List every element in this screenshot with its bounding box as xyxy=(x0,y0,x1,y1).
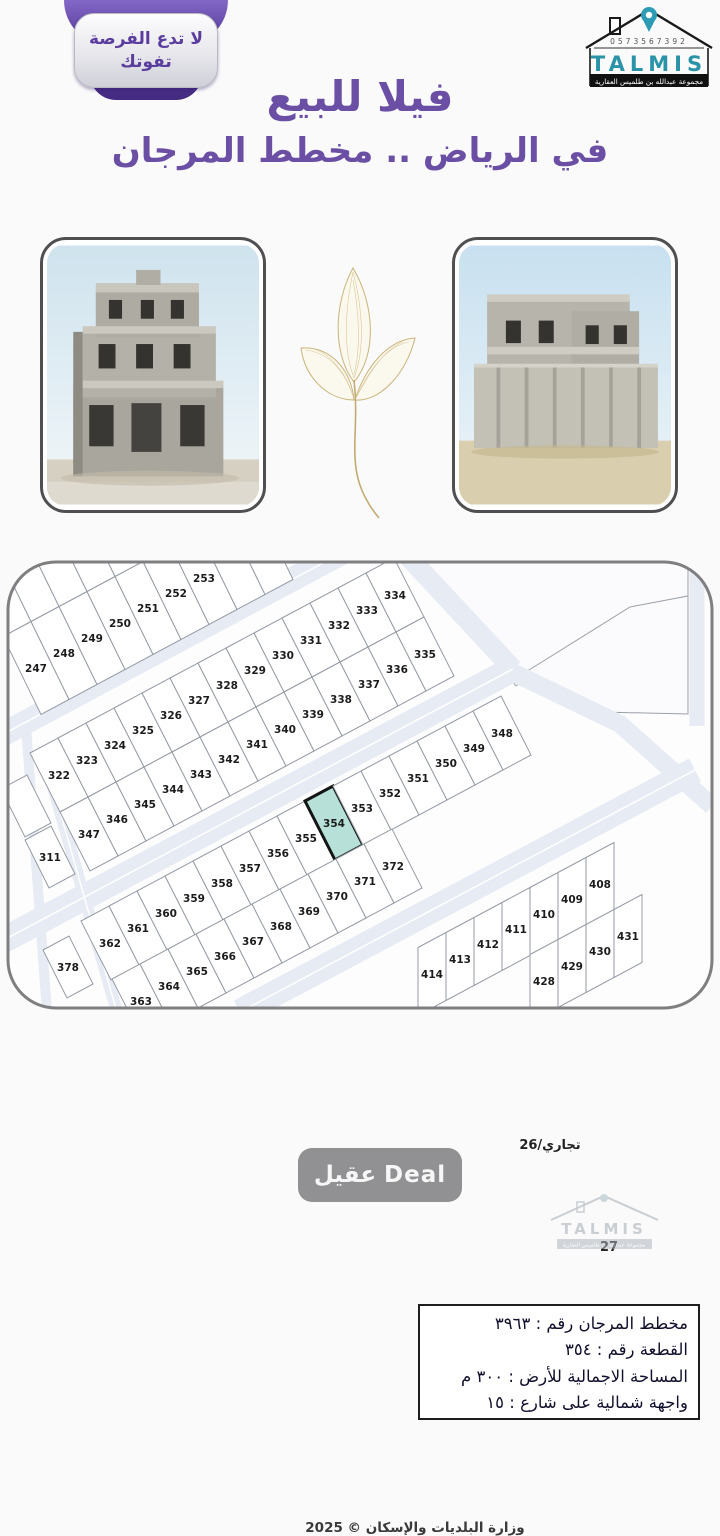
ministry-credit: وزارة البلديات والإسكان © 2025 xyxy=(250,1520,580,1536)
parcel-label: 350 xyxy=(435,758,457,770)
page-title: فيلا للبيع في الرياض .. مخطط المرجان xyxy=(80,72,640,171)
parcel-label: 344 xyxy=(162,784,184,796)
gold-leaf-decoration-icon xyxy=(283,250,433,530)
parcel-label: 250 xyxy=(109,618,131,630)
parcel-label: 348 xyxy=(491,728,513,740)
parcel-label: 252 xyxy=(165,588,187,600)
parcel-label: 347 xyxy=(78,829,100,841)
parcel-label: 331 xyxy=(300,635,322,647)
parcel-label: 342 xyxy=(218,754,240,766)
villa-photo-right-image xyxy=(459,244,671,506)
parcel-label: 430 xyxy=(589,946,611,958)
info-line-parcel: القطعة رقم : ٣٥٤ xyxy=(426,1337,688,1363)
talmis-watermark: TALMIS مجموعة عبدالله بن طلميس العقارية xyxy=(537,1190,672,1258)
parcel-label: 346 xyxy=(106,814,128,826)
parcel-label: 251 xyxy=(137,603,159,615)
parcel-label: 325 xyxy=(132,725,154,737)
flyer-root: { "badge": { "line1": "لا تدع الفرصة", "… xyxy=(0,0,720,1040)
parcel-label: 369 xyxy=(298,906,320,918)
parcel-label: 412 xyxy=(477,939,499,951)
parcel-label: 431 xyxy=(617,931,639,943)
parcel-label: 363 xyxy=(130,996,152,1008)
parcel-label: 253 xyxy=(193,573,215,585)
parcel-label: 410 xyxy=(533,909,555,921)
parcel-label: 357 xyxy=(239,863,261,875)
parcel-label: 351 xyxy=(407,773,429,785)
parcel-label: 340 xyxy=(274,724,296,736)
parcel-label: 334 xyxy=(384,590,406,602)
badge-text-line2: تفوتك xyxy=(120,51,172,73)
info-line-area: المساحة الاجمالية للأرض : ٣٠٠ م xyxy=(426,1364,688,1390)
talmis-watermark-tagline: مجموعة عبدالله بن طلميس العقارية xyxy=(563,1243,646,1249)
info-line-plan: مخطط المرجان رقم : ٣٩٦٣ xyxy=(426,1311,688,1337)
parcel-label: 329 xyxy=(244,665,266,677)
parcel-label: 349 xyxy=(463,743,485,755)
parcel-label: 368 xyxy=(270,921,292,933)
parcel-label: 337 xyxy=(358,679,380,691)
parcel-label: 372 xyxy=(382,861,404,873)
parcel-label: 328 xyxy=(216,680,238,692)
parcel-label: 247 xyxy=(25,663,47,675)
title-line2: في الرياض .. مخطط المرجان xyxy=(80,131,640,171)
parcel-label: 249 xyxy=(81,633,103,645)
parcel-label: 413 xyxy=(449,954,471,966)
talmis-watermark-text: TALMIS xyxy=(561,1220,647,1238)
parcel-label: 371 xyxy=(354,876,376,888)
parcel-label: 311 xyxy=(39,852,61,864)
parcel-label: 343 xyxy=(190,769,212,781)
parcel-label: 359 xyxy=(183,893,205,905)
parcel-label: 358 xyxy=(211,878,233,890)
parcel-label: 378 xyxy=(57,962,79,974)
parcel-label: 352 xyxy=(379,788,401,800)
info-line-frontage: واجهة شمالية على شارع : ١٥ xyxy=(426,1390,688,1416)
parcel-label: 360 xyxy=(155,908,177,920)
parcel-label: 414 xyxy=(421,969,443,981)
parcel-label: 330 xyxy=(272,650,294,662)
logo-phone: 0573567392 xyxy=(610,37,688,46)
parcel-label: 367 xyxy=(242,936,264,948)
parcel-label: 248 xyxy=(53,648,75,660)
parcel-label: 322 xyxy=(48,770,70,782)
parcel-label: 332 xyxy=(328,620,350,632)
deal-watermark: عقيل Deal xyxy=(298,1148,462,1202)
photo-villa-left xyxy=(40,237,266,513)
parcel-label: 365 xyxy=(186,966,208,978)
parcel-label: 324 xyxy=(104,740,126,752)
parcel-label: 370 xyxy=(326,891,348,903)
parcel-label: 339 xyxy=(302,709,324,721)
plot-map: 2472482492502512522533223233243253263273… xyxy=(0,552,720,1012)
parcel-label: 428 xyxy=(533,976,555,988)
parcel-label: 323 xyxy=(76,755,98,767)
parcel-label: 341 xyxy=(246,739,268,751)
parcel-label: 354 xyxy=(323,818,345,830)
parcel-label: 326 xyxy=(160,710,182,722)
parcel-label: 355 xyxy=(295,833,317,845)
parcel-label: 327 xyxy=(188,695,210,707)
parcel-label: 429 xyxy=(561,961,583,973)
parcel-label: 361 xyxy=(127,923,149,935)
plot-info-box: مخطط المرجان رقم : ٣٩٦٣ القطعة رقم : ٣٥٤… xyxy=(418,1304,700,1420)
parcel-label: 364 xyxy=(158,981,180,993)
badge-text-line1: لا تدع الفرصة xyxy=(89,28,203,50)
parcel-label: 366 xyxy=(214,951,236,963)
plot-map-canvas: 2472482492502512522533223233243253263273… xyxy=(0,552,720,1012)
parcel-label: 409 xyxy=(561,894,583,906)
parcel-label: 338 xyxy=(330,694,352,706)
parcel-label: 356 xyxy=(267,848,289,860)
parcel-label: 353 xyxy=(351,803,373,815)
commercial-parcel-label: تجاري/26 xyxy=(498,1138,602,1153)
villa-photo-left-image xyxy=(47,244,259,506)
title-line1: فيلا للبيع xyxy=(80,72,640,121)
parcel xyxy=(105,552,171,562)
parcel-label: 408 xyxy=(589,879,611,891)
parcel-label: 335 xyxy=(414,649,436,661)
parcel-label: 411 xyxy=(505,924,527,936)
photo-villa-right xyxy=(452,237,678,513)
parcel-label: 333 xyxy=(356,605,378,617)
parcel-label: 336 xyxy=(386,664,408,676)
parcel-label: 362 xyxy=(99,938,121,950)
parcel-label: 345 xyxy=(134,799,156,811)
